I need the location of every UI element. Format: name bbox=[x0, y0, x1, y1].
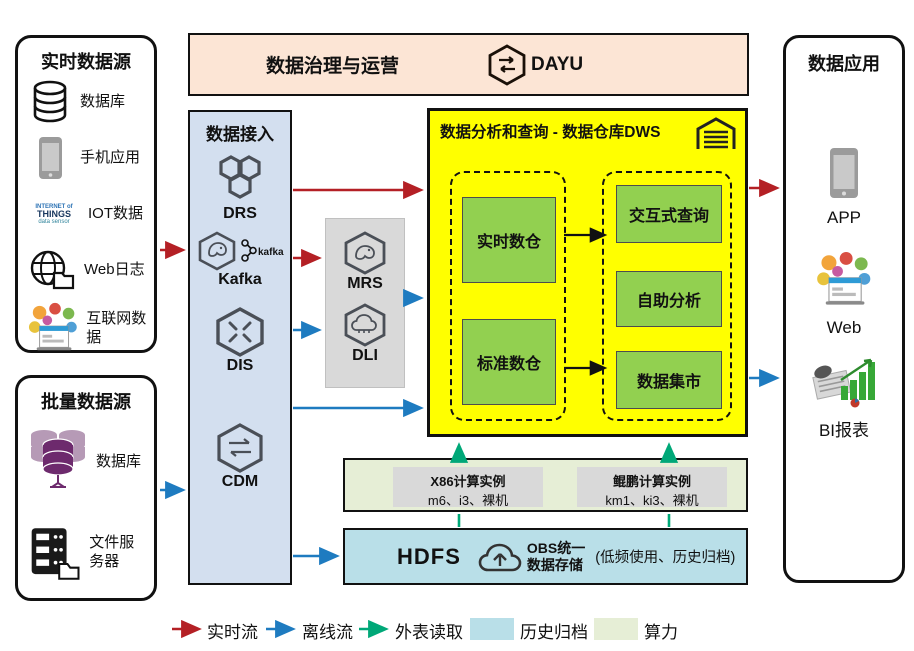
mrs-label: MRS bbox=[326, 275, 404, 293]
dayu-brand: DAYU bbox=[487, 44, 583, 86]
source-item-batch-database: 数据库 bbox=[18, 414, 154, 510]
source-item-label: IOT数据 bbox=[88, 205, 143, 224]
source-item-label: 互联网数据 bbox=[86, 310, 148, 348]
kafka-hexagon-icon bbox=[196, 231, 238, 271]
data-access-title: 数据接入 bbox=[190, 120, 290, 145]
warehouse-group: 实时数仓 标准数仓 bbox=[450, 171, 566, 421]
app-item-mobile: APP bbox=[786, 146, 902, 228]
drs-label: DRS bbox=[190, 205, 290, 223]
legend-offline-label: 离线流 bbox=[302, 618, 353, 643]
legend-compute-label: 算力 bbox=[644, 618, 678, 643]
processing-panel: MRS DLI bbox=[325, 218, 405, 388]
governance-banner: 数据治理与运营 DAYU bbox=[188, 33, 749, 96]
analysis-group: 交互式查询 自助分析 数据集市 bbox=[602, 171, 732, 421]
self-service-analysis-box: 自助分析 bbox=[616, 271, 722, 327]
standard-warehouse-box: 标准数仓 bbox=[462, 319, 556, 405]
cdm-hexagon-icon bbox=[214, 423, 266, 473]
source-item-weblog: Web日志 bbox=[18, 242, 154, 298]
batch-sources-panel: 批量数据源 数据库 bbox=[15, 375, 157, 601]
source-item-internet: 互联网数据 bbox=[18, 298, 154, 360]
source-item-label: 数据库 bbox=[96, 453, 141, 472]
legend-archive-label: 历史归档 bbox=[520, 618, 588, 643]
app-item-label: Web bbox=[786, 318, 902, 338]
storage-note: (低频使用、历史归档) bbox=[595, 546, 735, 567]
source-item-file-server: 文件服务器 bbox=[18, 510, 154, 596]
interactive-query-box: 交互式查询 bbox=[616, 185, 722, 243]
hdfs-label: HDFS bbox=[397, 544, 461, 570]
dws-panel: 数据分析和查询 - 数据仓库DWS 实时数仓 标准数仓 交互式查询 自助分析 数… bbox=[427, 108, 748, 437]
obs-line2: 数据存储 bbox=[527, 557, 583, 573]
batch-sources-title: 批量数据源 bbox=[18, 388, 154, 414]
kunpeng-instance-box: 鲲鹏计算实例 km1、ki3、裸机 bbox=[577, 467, 727, 507]
instance-name: 鲲鹏计算实例 bbox=[577, 471, 727, 490]
source-item-iot: INTERNET of THINGS data sensor IOT数据 bbox=[18, 186, 154, 242]
bi-chart-icon bbox=[811, 356, 877, 408]
mobile-phone-icon bbox=[28, 135, 72, 181]
governance-title: 数据治理与运营 bbox=[266, 51, 399, 78]
data-apps-panel: 数据应用 APP Web bbox=[783, 35, 905, 583]
dws-title: 数据分析和查询 - 数据仓库DWS bbox=[440, 120, 660, 142]
realtime-warehouse-box: 实时数仓 bbox=[462, 197, 556, 283]
database-purple-icon bbox=[28, 425, 88, 499]
app-item-web: Web bbox=[786, 252, 902, 338]
dayu-label: DAYU bbox=[531, 54, 583, 76]
app-phone-icon bbox=[827, 146, 861, 200]
file-server-icon bbox=[28, 523, 81, 583]
iot-cloud-icon: INTERNET of THINGS data sensor bbox=[28, 204, 80, 225]
source-item-label: 数据库 bbox=[80, 93, 125, 112]
realtime-sources-title: 实时数据源 bbox=[18, 48, 154, 74]
instance-specs: km1、ki3、裸机 bbox=[577, 490, 727, 509]
obs-label: OBS统一 数据存储 bbox=[527, 540, 585, 572]
mrs-hexagon-icon bbox=[342, 231, 388, 275]
data-apps-title: 数据应用 bbox=[786, 50, 902, 76]
drs-hexagon-icon bbox=[211, 153, 269, 205]
instance-specs: m6、i3、裸机 bbox=[393, 490, 543, 509]
dis-label: DIS bbox=[190, 357, 290, 375]
kafka-row: kafka bbox=[190, 231, 290, 271]
legend-archive-swatch bbox=[470, 618, 514, 640]
source-item-label: 文件服务器 bbox=[89, 534, 148, 572]
architecture-diagram: 实时数据源 数据库 手机应用 INTERNET of THINGS data s… bbox=[0, 0, 914, 651]
data-mart-box: 数据集市 bbox=[616, 351, 722, 409]
svg-text:kafka: kafka bbox=[258, 247, 284, 258]
warehouse-icon bbox=[695, 117, 737, 151]
source-item-mobile: 手机应用 bbox=[18, 130, 154, 186]
realtime-sources-panel: 实时数据源 数据库 手机应用 INTERNET of THINGS data s… bbox=[15, 35, 157, 353]
obs-line1: OBS统一 bbox=[527, 540, 585, 556]
dli-hexagon-icon bbox=[342, 303, 388, 347]
database-icon bbox=[28, 79, 72, 125]
legend-external-label: 外表读取 bbox=[395, 618, 463, 643]
kafka-label: Kafka bbox=[190, 271, 290, 289]
legend-realtime-label: 实时流 bbox=[207, 618, 258, 643]
data-access-panel: 数据接入 DRS kafka Kafka bbox=[188, 110, 292, 585]
cdm-label: CDM bbox=[190, 473, 290, 491]
source-item-label: Web日志 bbox=[84, 261, 145, 280]
internet-bubbles-icon bbox=[28, 302, 78, 356]
storage-panel: HDFS OBS统一 数据存储 (低频使用、历史归档) bbox=[343, 528, 748, 585]
x86-instance-box: X86计算实例 m6、i3、裸机 bbox=[393, 467, 543, 507]
obs-cloud-upload-icon bbox=[477, 539, 523, 575]
web-bubbles-icon bbox=[813, 252, 875, 310]
compute-panel: X86计算实例 m6、i3、裸机 鲲鹏计算实例 km1、ki3、裸机 bbox=[343, 458, 748, 512]
source-item-database: 数据库 bbox=[18, 74, 154, 130]
app-item-bi: BI报表 bbox=[786, 356, 902, 441]
app-item-label: APP bbox=[786, 208, 902, 228]
app-item-label: BI报表 bbox=[786, 416, 902, 441]
legend-compute-swatch bbox=[594, 618, 638, 640]
dayu-hexagon-icon bbox=[487, 44, 527, 86]
instance-name: X86计算实例 bbox=[393, 471, 543, 490]
dis-hexagon-icon bbox=[213, 307, 267, 357]
source-item-label: 手机应用 bbox=[80, 149, 140, 168]
kafka-logo-icon: kafka bbox=[240, 238, 284, 264]
globe-folder-icon bbox=[28, 248, 76, 292]
dli-label: DLI bbox=[326, 347, 404, 365]
